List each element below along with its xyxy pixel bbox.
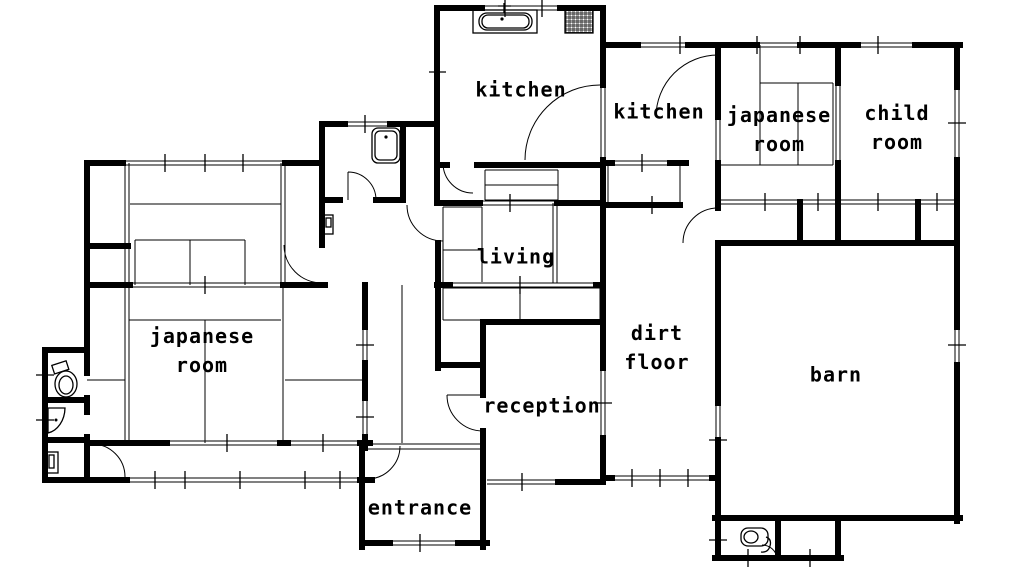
room-label-child-room: child room — [857, 99, 937, 157]
room-label-living: living — [477, 243, 555, 272]
shoe-cabinet-icon — [47, 452, 58, 473]
toilet-icon — [52, 361, 77, 397]
floorplan-canvas: kitchen kitchen japanese room child room… — [0, 0, 1011, 568]
room-label-dirt-floor: dirt floor — [619, 319, 695, 377]
room-label-kitchen-secondary: kitchen — [613, 98, 704, 127]
room-label-entrance: entrance — [368, 494, 472, 523]
room-label-kitchen-main: kitchen — [475, 76, 566, 105]
room-label-barn: barn — [810, 361, 862, 390]
room-label-reception: reception — [483, 392, 600, 421]
room-label-japanese-room-upper: japanese room — [723, 101, 835, 159]
toilet2-icon — [741, 528, 771, 552]
room-label-japanese-room-left: japanese room — [146, 322, 258, 380]
stove-icon — [565, 10, 593, 33]
tatami-grid-lines — [87, 45, 833, 449]
water-heater-icon — [324, 215, 333, 234]
sink-icon — [372, 128, 400, 163]
